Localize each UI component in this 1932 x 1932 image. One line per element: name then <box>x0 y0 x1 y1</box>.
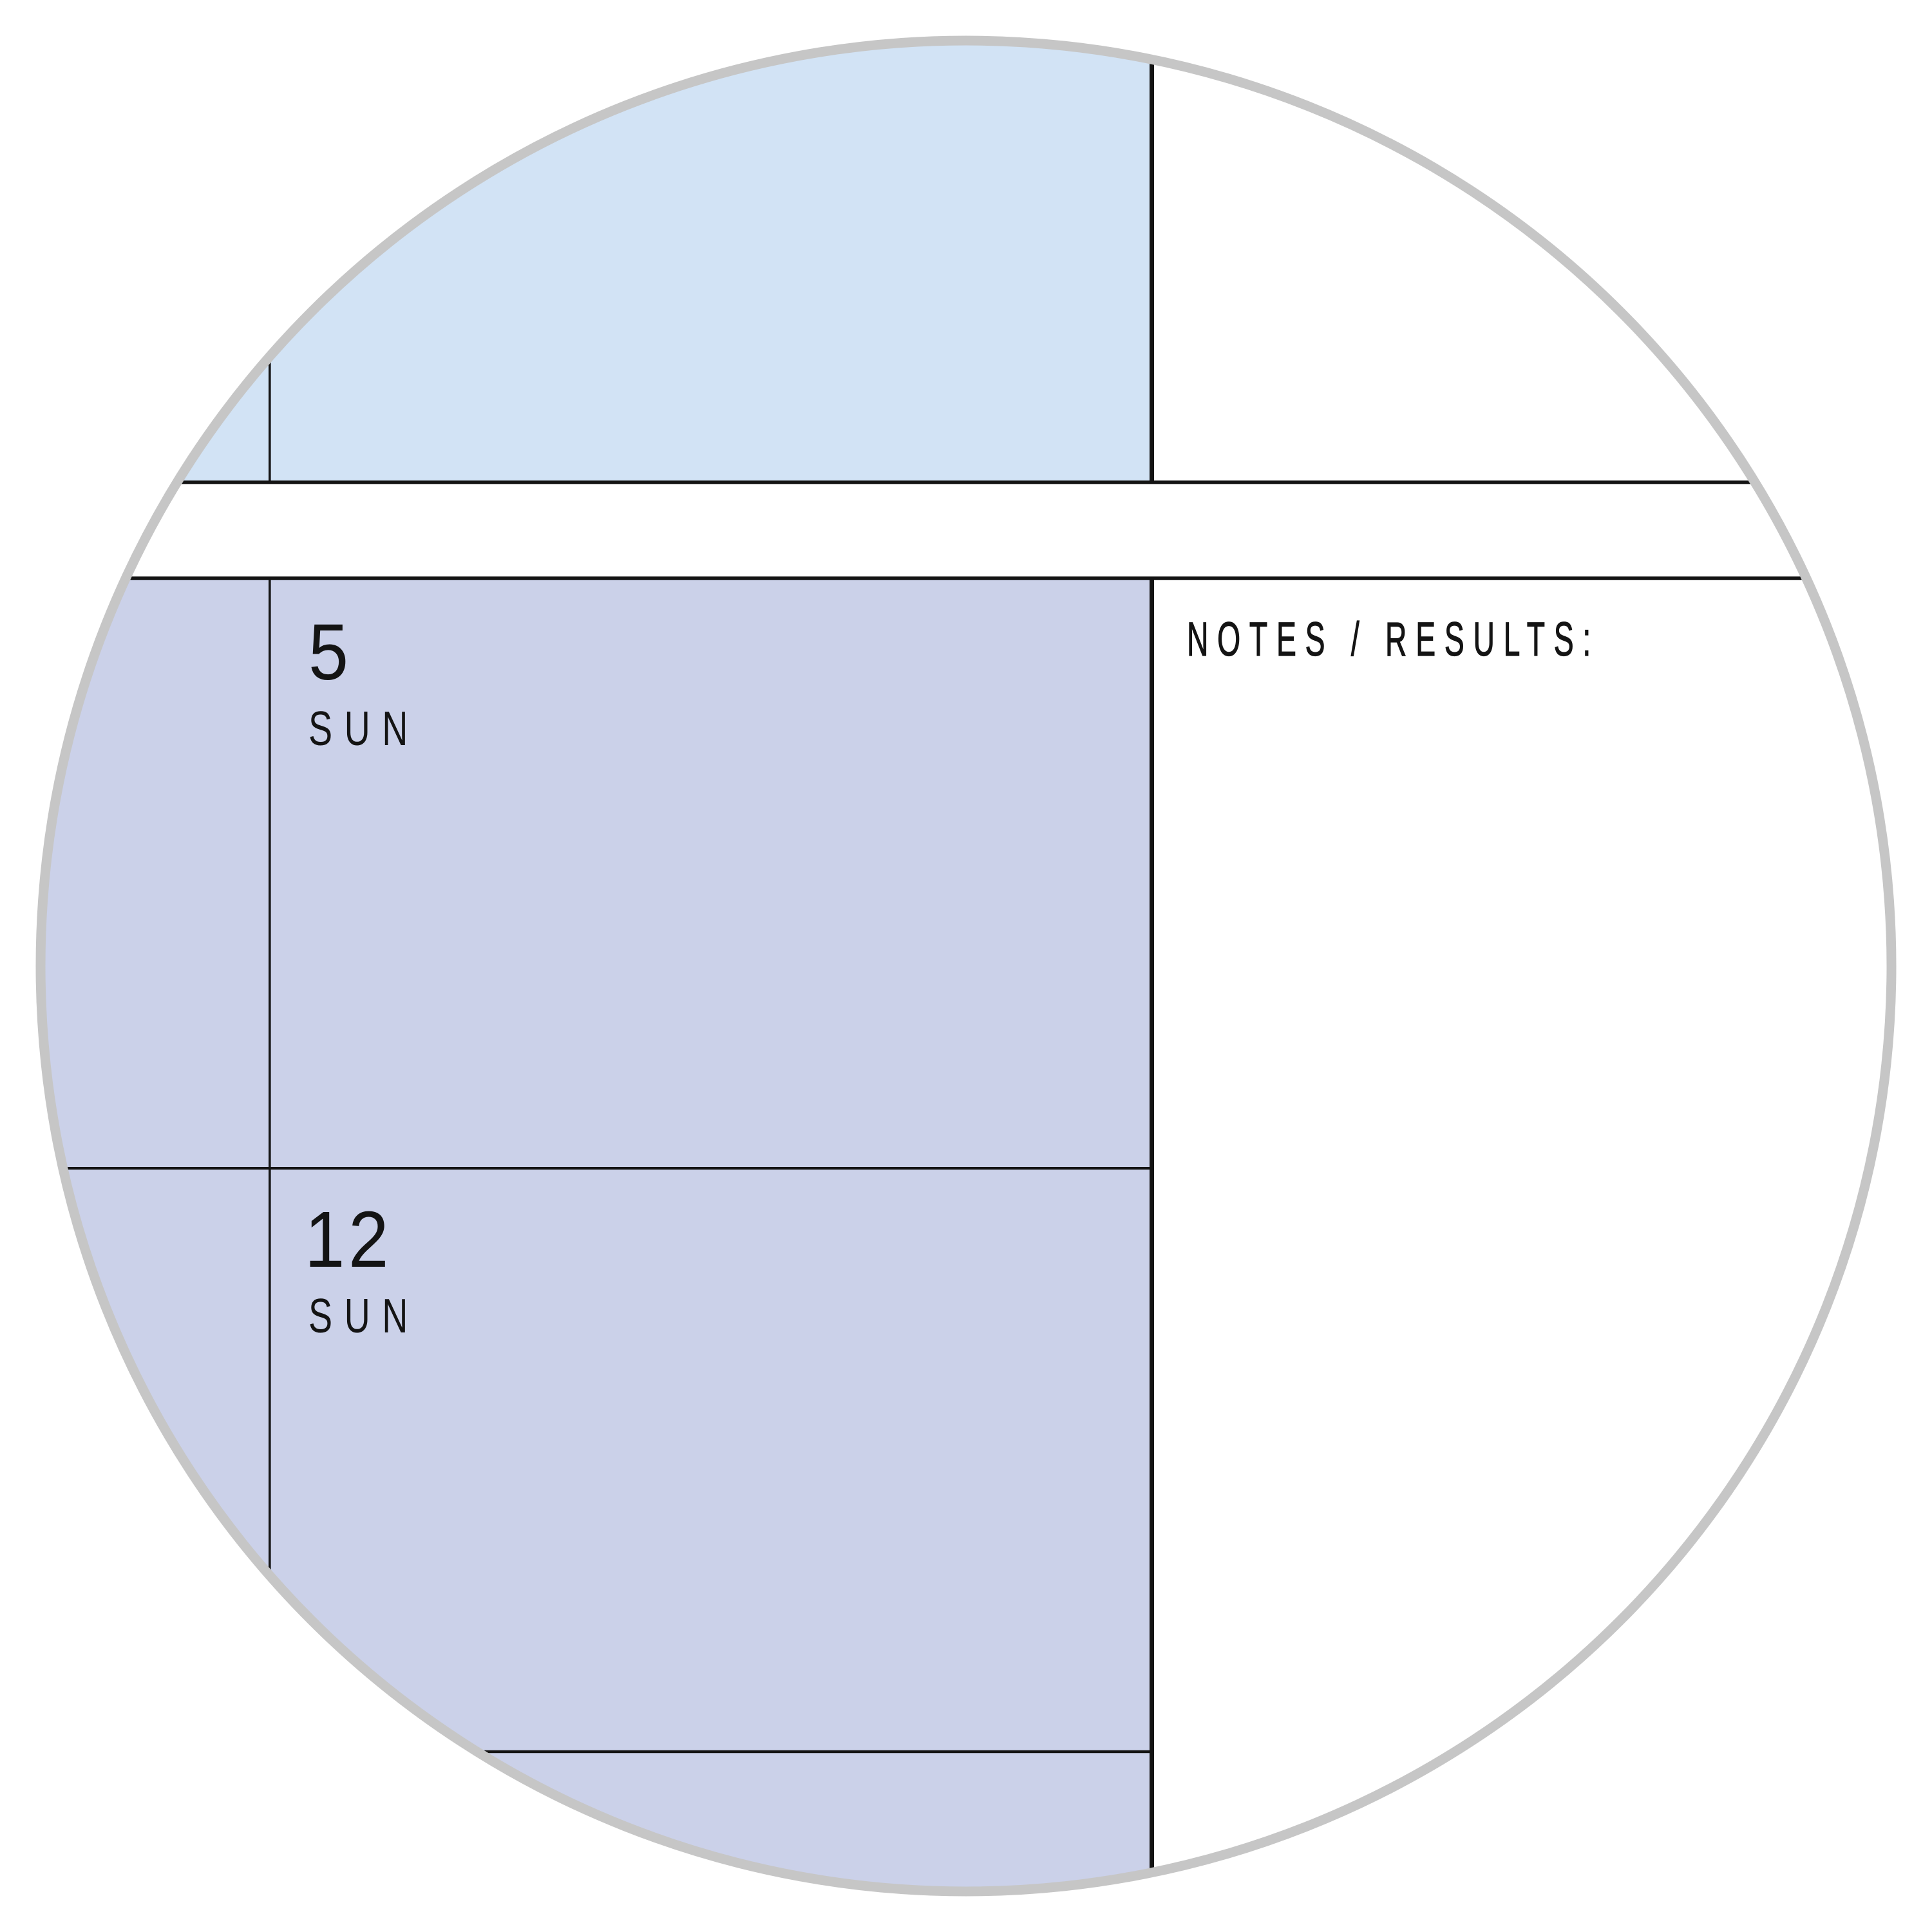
svg-text:SUN: SUN <box>308 701 420 755</box>
svg-text:SUN: SUN <box>308 1289 420 1343</box>
svg-text:NOTES / RESULTS:: NOTES / RESULTS: <box>1187 612 1600 666</box>
svg-text:12: 12 <box>305 1196 392 1284</box>
svg-text:5: 5 <box>308 609 348 697</box>
